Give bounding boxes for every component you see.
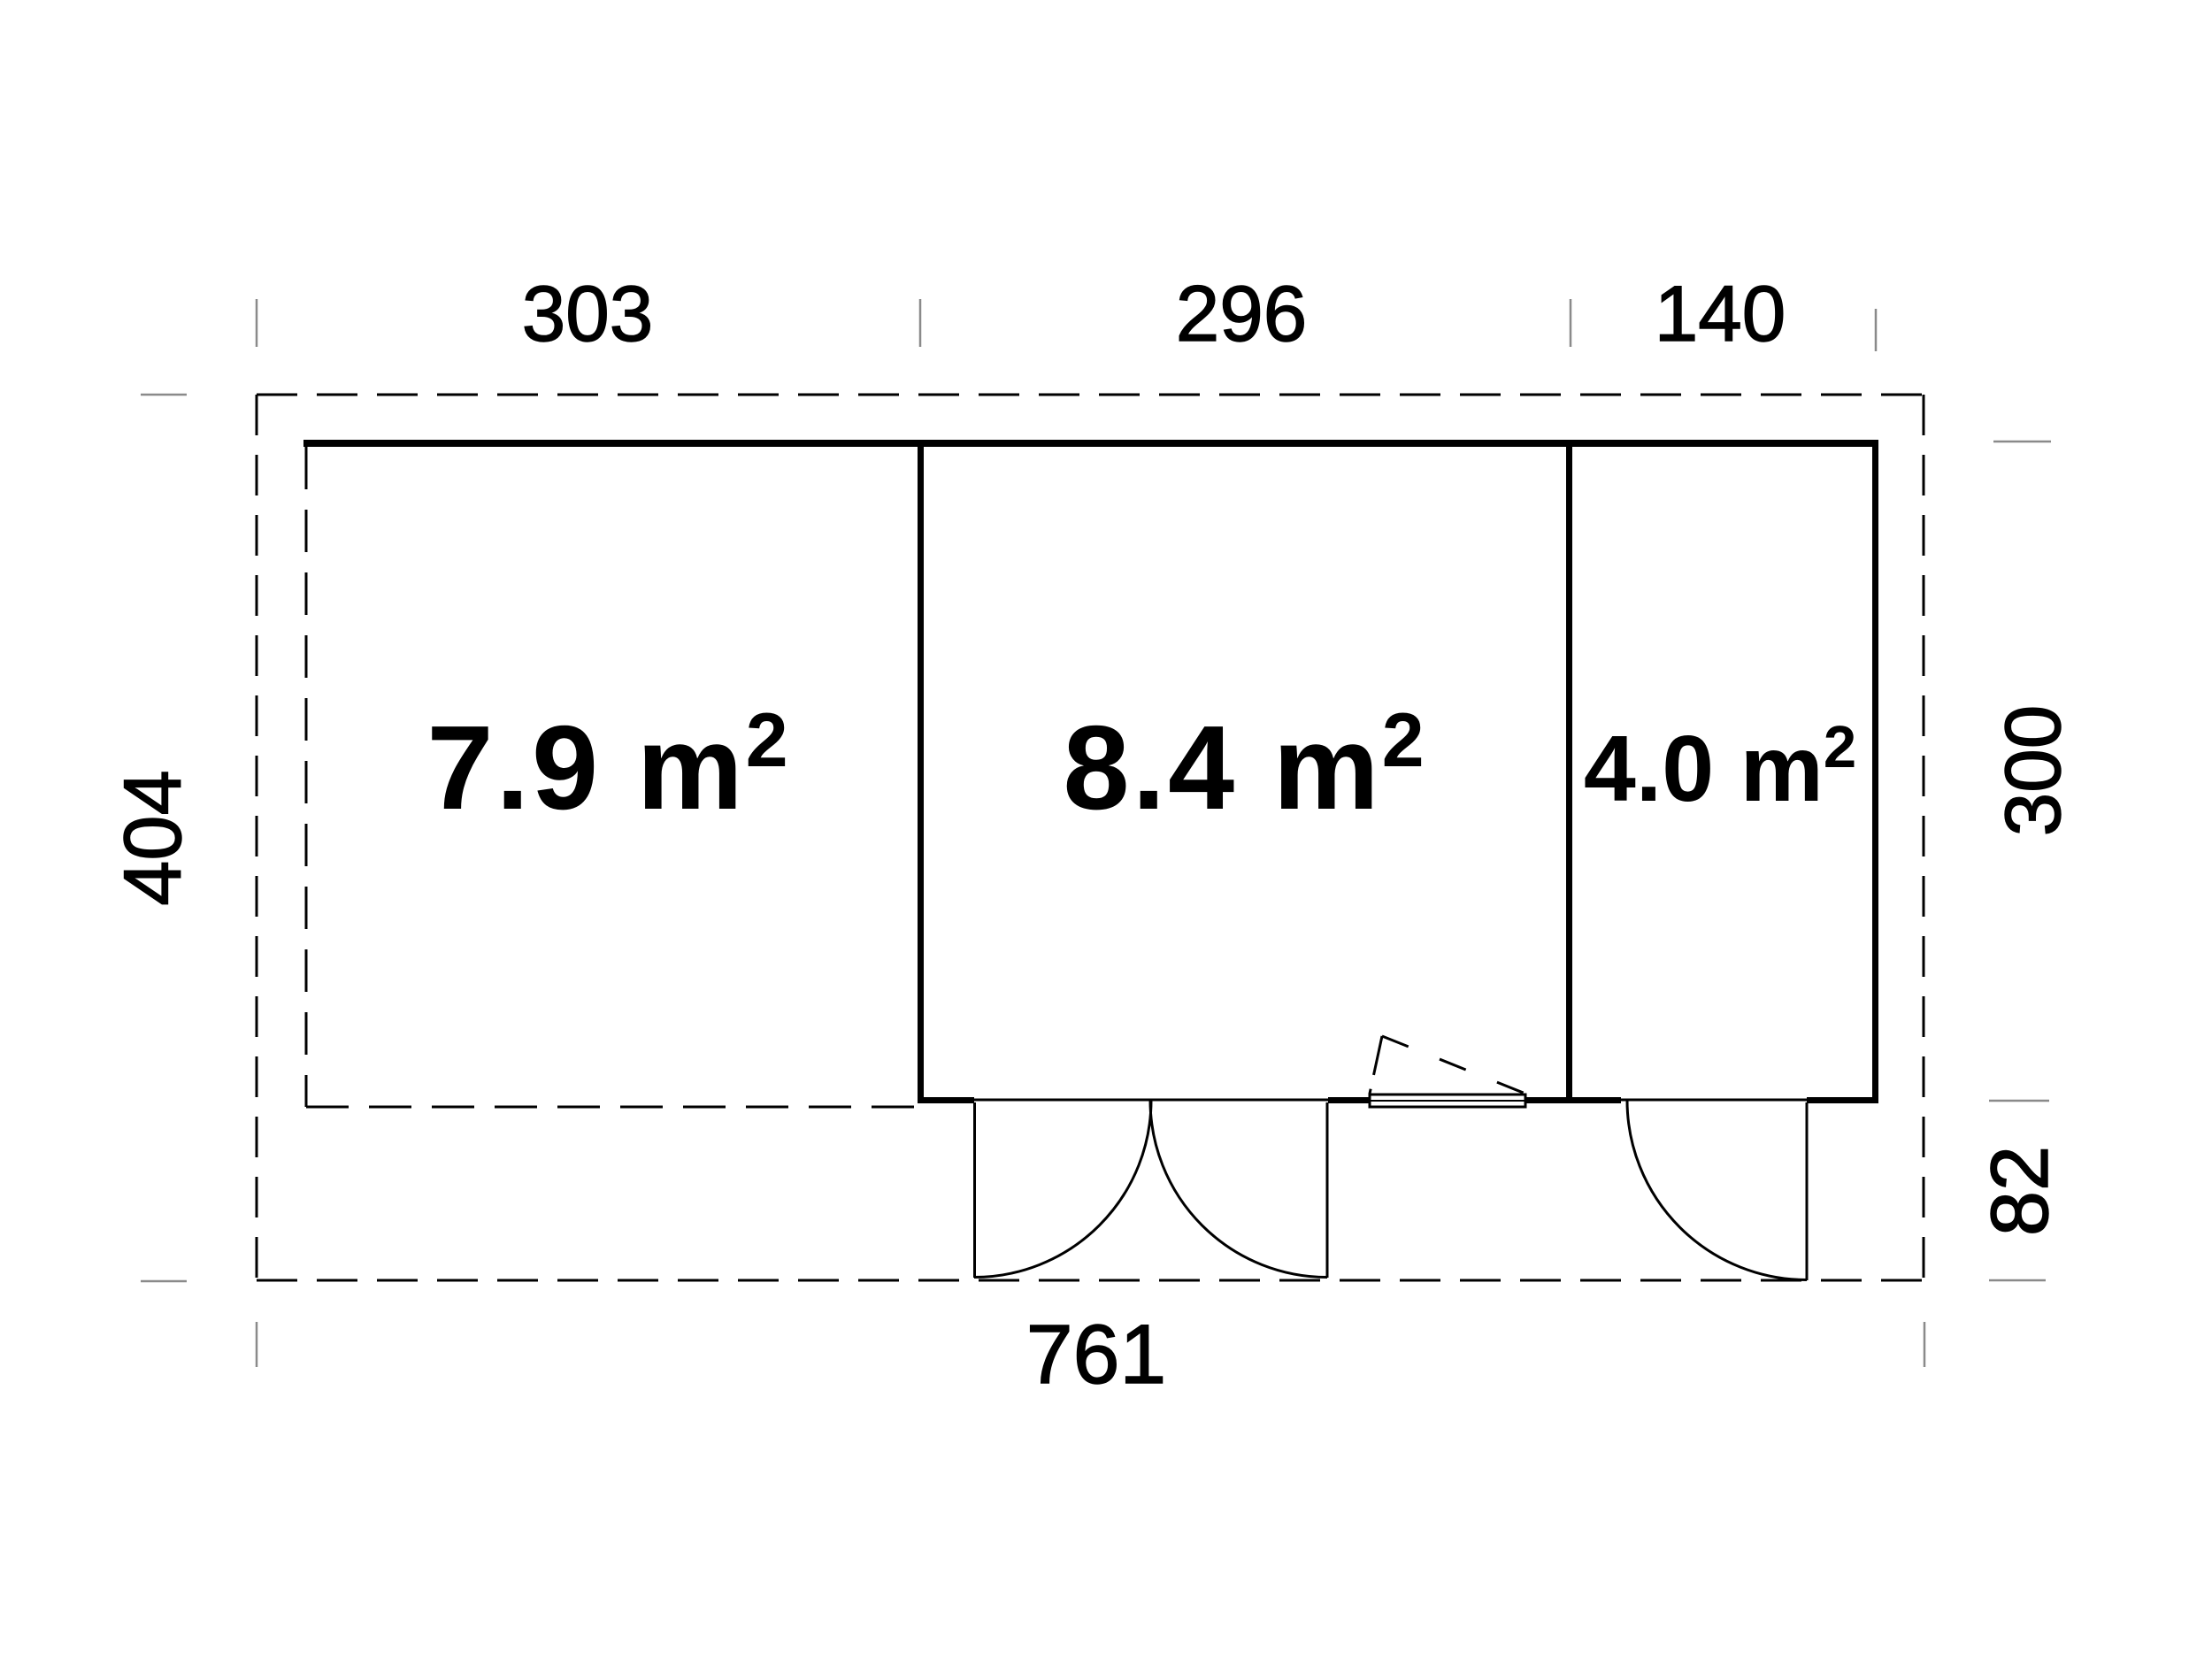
svg-text:8.4 m2: 8.4 m2 xyxy=(1063,698,1426,834)
svg-text:296: 296 xyxy=(1176,269,1308,357)
svg-text:82: 82 xyxy=(1975,1146,2065,1236)
svg-text:4.0 m2: 4.0 m2 xyxy=(1584,714,1856,821)
svg-text:7.9 m2: 7.9 m2 xyxy=(426,698,790,834)
svg-text:140: 140 xyxy=(1655,269,1786,357)
svg-text:404: 404 xyxy=(108,770,198,906)
svg-text:761: 761 xyxy=(1026,1308,1167,1402)
svg-text:303: 303 xyxy=(522,269,654,357)
svg-text:300: 300 xyxy=(1988,705,2077,837)
